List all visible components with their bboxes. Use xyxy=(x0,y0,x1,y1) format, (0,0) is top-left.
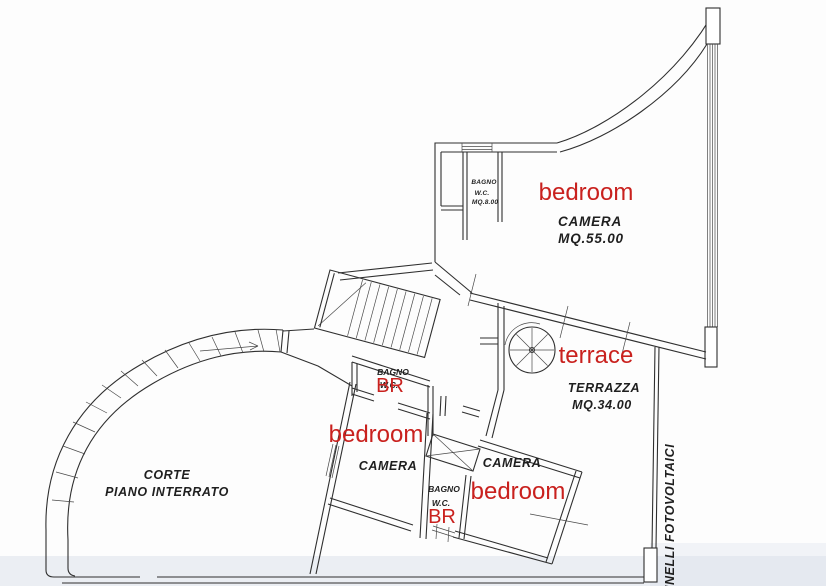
wall-pillar-top-right xyxy=(706,8,720,44)
scan-artifact-band xyxy=(0,543,826,586)
floor-plan-drawing: BAGNO W.C. MQ.8.00 bedroom CAMERA MQ.55.… xyxy=(0,0,826,586)
bedroom-left-walls xyxy=(310,382,433,574)
shaft-box xyxy=(426,434,480,471)
label-pannelli-fotovoltaici: PANNELLI FOTOVOLTAICI xyxy=(663,444,677,586)
wall-pillar-bottom-right xyxy=(705,327,717,367)
room-label-wc-top: W.C. xyxy=(475,190,490,197)
staircase-curved xyxy=(46,329,289,540)
room-label-terrazza: TERRAZZA xyxy=(568,381,640,395)
annotation-bedroom-right: bedroom xyxy=(471,478,566,505)
window-right xyxy=(708,44,718,327)
annotation-bedroom-top: bedroom xyxy=(539,179,634,206)
area-label-corte: CORTE xyxy=(144,468,191,482)
room-label-bagno-top: BAGNO xyxy=(471,179,496,186)
annotation-bedroom-left: bedroom xyxy=(329,421,424,448)
room-label-camera-right: CAMERA xyxy=(483,456,541,470)
annotation-br-bottom: BR xyxy=(428,506,456,528)
staircase-spiral xyxy=(505,323,555,373)
room-area-terrazza: MQ.34.00 xyxy=(572,398,632,412)
area-label-piano-interrato: PIANO INTERRATO xyxy=(105,485,229,499)
window-top xyxy=(462,143,492,152)
room-area-bagno-top: MQ.8.00 xyxy=(472,199,499,206)
staircase-straight xyxy=(314,270,440,357)
annotation-br-mid: BR xyxy=(376,375,404,397)
stair-direction-arrow xyxy=(200,342,258,351)
bathroom-top-walls xyxy=(441,152,502,240)
terrace-walls xyxy=(440,303,504,438)
room-label-camera-top: CAMERA xyxy=(558,214,622,229)
room-area-camera-top: MQ.55.00 xyxy=(558,231,624,246)
room-label-camera-left: CAMERA xyxy=(359,459,417,473)
annotation-terrace: terrace xyxy=(559,342,634,369)
room-label-bagno-bottom: BAGNO xyxy=(428,484,460,494)
floor-plan-scan: BAGNO W.C. MQ.8.00 bedroom CAMERA MQ.55.… xyxy=(0,0,826,586)
